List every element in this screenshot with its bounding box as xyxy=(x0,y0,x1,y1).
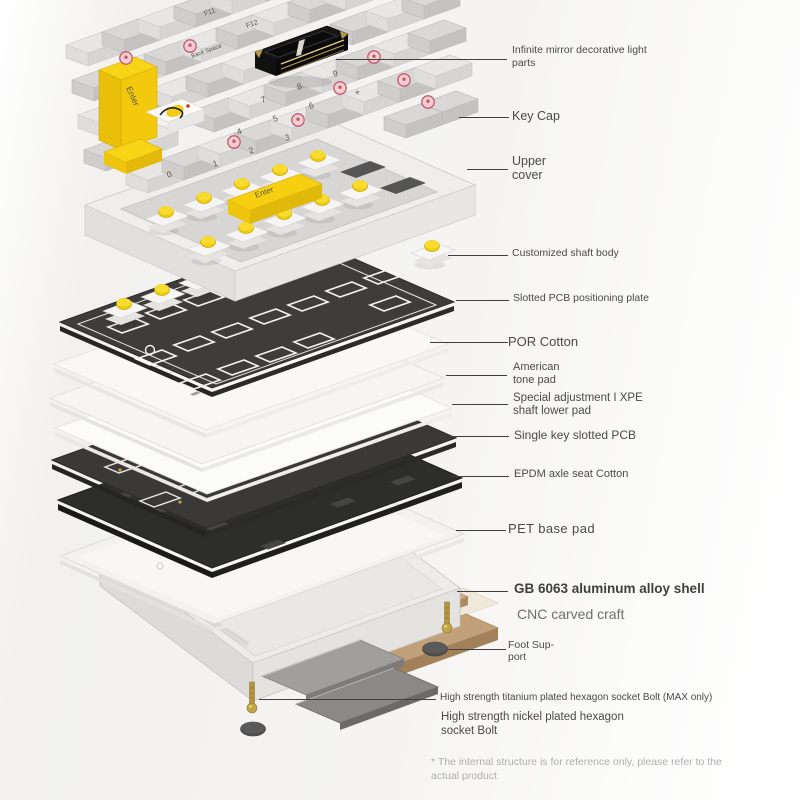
label-por-cotton: POR Cotton xyxy=(508,334,578,350)
leader-line xyxy=(467,169,508,170)
leader-line xyxy=(457,591,508,592)
leader-line xyxy=(447,649,506,650)
leader-line xyxy=(259,699,436,700)
leader-line xyxy=(459,117,509,118)
label-key-cap: Key Cap xyxy=(512,109,560,124)
leader-line xyxy=(452,476,509,477)
label-upper-cover: Upper cover xyxy=(512,155,570,183)
leader-line xyxy=(336,59,507,60)
label-epdm-axle-seat-cotton: EPDM axle seat Cotton xyxy=(514,468,628,481)
label-pet-base-pad: PET base pad xyxy=(508,521,595,537)
label-xpe-shaft-lower-pad: Special adjustment I XPE shaft lower pad xyxy=(513,392,658,418)
leader-line xyxy=(456,300,509,301)
exploded-keyboard-illustration: F11 F12 Back Space 7 8 9 4 5 6 1 2 3 0 +… xyxy=(0,0,800,800)
leader-line xyxy=(456,530,506,531)
disclaimer-note: * The internal structure is for referenc… xyxy=(431,756,731,783)
label-slotted-pcb-positioning-plate: Slotted PCB positioning plate xyxy=(513,292,649,305)
label-cnc-carved-craft: CNC carved craft xyxy=(517,606,624,623)
yellow-enter-keycap xyxy=(99,57,157,150)
label-titanium-bolt: High strength titanium plated hexagon so… xyxy=(440,692,712,704)
label-foot-support: Foot Sup-port xyxy=(508,639,560,663)
leader-line xyxy=(448,255,508,256)
leader-line xyxy=(446,375,507,376)
leader-line xyxy=(452,404,508,405)
product-illustration-stage: F11 F12 Back Space 7 8 9 4 5 6 1 2 3 0 +… xyxy=(0,0,800,800)
label-nickel-bolt: High strength nickel plated hexagon sock… xyxy=(441,711,631,739)
label-infinite-mirror: Infinite mirror decorative light parts xyxy=(512,44,664,70)
leader-line xyxy=(446,436,509,437)
label-single-key-slotted-pcb: Single key slotted PCB xyxy=(514,428,636,443)
label-american-tone-pad: American tone pad xyxy=(513,361,571,386)
label-customized-shaft-body: Customized shaft body xyxy=(512,247,619,260)
leader-line xyxy=(430,342,508,343)
label-gb6063-aluminum-alloy-shell: GB 6063 aluminum alloy shell xyxy=(514,581,705,597)
